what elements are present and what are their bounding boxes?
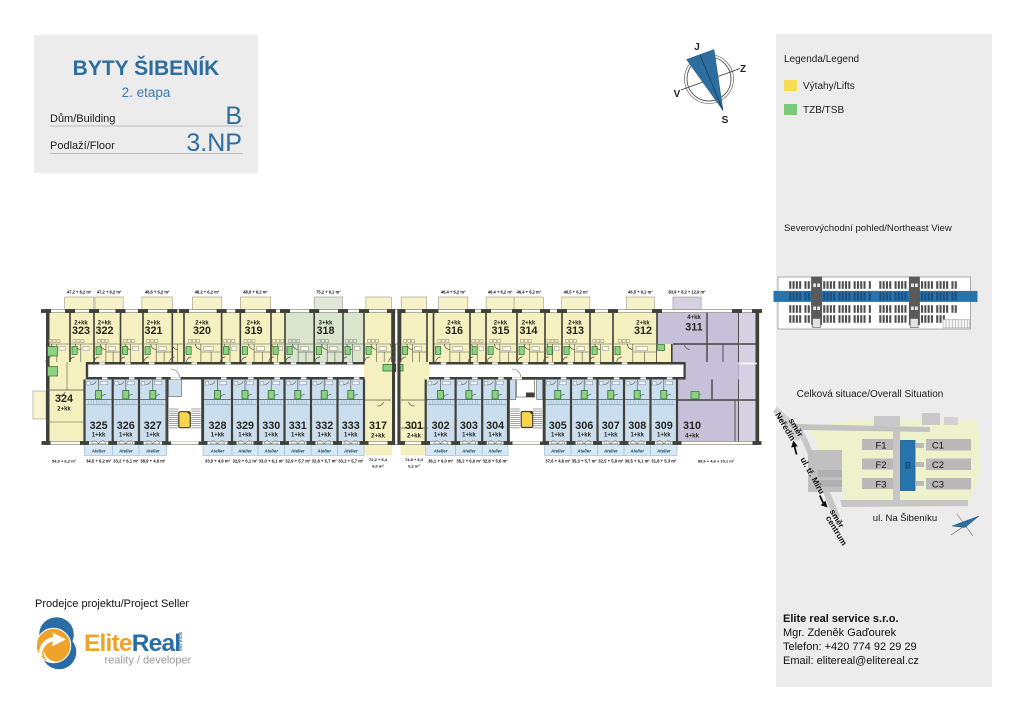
svg-text:Telefon: +420 774 92 29 29: Telefon: +420 774 92 29 29 (783, 641, 917, 653)
svg-text:46,4 + 6,2 m²: 46,4 + 6,2 m² (441, 290, 466, 295)
svg-text:46,5 + 6,2 m²: 46,5 + 6,2 m² (564, 290, 589, 295)
svg-text:302: 302 (432, 420, 450, 432)
svg-text:service: service (178, 632, 184, 651)
svg-text:1+kk: 1+kk (119, 432, 133, 438)
svg-text:35,3 + 5,7 m²: 35,3 + 5,7 m² (572, 459, 598, 464)
svg-text:Atelier: Atelier (210, 448, 225, 453)
svg-text:J: J (694, 42, 700, 53)
svg-text:reality / developer: reality / developer (105, 655, 192, 667)
svg-text:Z: Z (740, 64, 746, 75)
svg-text:325: 325 (90, 420, 108, 432)
svg-text:Atelier: Atelier (263, 448, 278, 453)
svg-text:311: 311 (685, 322, 702, 334)
svg-text:Atelier: Atelier (487, 448, 502, 453)
svg-text:V: V (674, 89, 681, 100)
svg-text:47,2 + 6,2 m²: 47,2 + 6,2 m² (67, 290, 92, 295)
svg-text:1+kk: 1+kk (604, 432, 618, 438)
svg-text:C3: C3 (932, 480, 944, 491)
svg-text:Atelier: Atelier (316, 448, 331, 453)
svg-text:Atelier: Atelier (629, 448, 644, 453)
svg-text:4+kk: 4+kk (685, 433, 699, 440)
svg-text:C1: C1 (932, 441, 944, 452)
svg-text:317: 317 (369, 420, 387, 432)
svg-text:2+kk: 2+kk (371, 433, 385, 440)
svg-text:30,5 + 6,1 m²: 30,5 + 6,1 m² (625, 459, 651, 464)
svg-text:32,8 + 5,7 m²: 32,8 + 5,7 m² (312, 459, 338, 464)
svg-text:310: 310 (683, 420, 701, 432)
svg-text:Atelier: Atelier (461, 448, 476, 453)
svg-text:Výtahy/Lifts: Výtahy/Lifts (803, 81, 855, 92)
svg-text:B: B (905, 461, 911, 472)
svg-text:Atelier: Atelier (145, 448, 160, 453)
svg-text:1+kk: 1+kk (462, 432, 476, 438)
svg-text:Atelier: Atelier (603, 448, 618, 453)
svg-text:TZB/TSB: TZB/TSB (803, 105, 844, 116)
svg-text:4+kk: 4+kk (687, 315, 701, 321)
svg-text:46,5 + 6,2 m²: 46,5 + 6,2 m² (628, 290, 653, 295)
svg-text:32,9 + 5,7 m²: 32,9 + 5,7 m² (285, 459, 311, 464)
svg-text:48,6 + 6,2 m²: 48,6 + 6,2 m² (243, 290, 268, 295)
svg-text:316: 316 (445, 325, 463, 337)
svg-text:1+kk: 1+kk (238, 432, 252, 438)
svg-text:306: 306 (575, 420, 593, 432)
svg-text:S: S (722, 115, 729, 126)
svg-text:48,2 + 6,2 m²: 48,2 + 6,2 m² (195, 290, 220, 295)
svg-text:308: 308 (628, 420, 646, 432)
svg-text:312: 312 (634, 325, 652, 337)
svg-text:32,8 + 5,6 m²: 32,8 + 5,6 m² (483, 459, 509, 464)
svg-text:46,4 + 6,2 m²: 46,4 + 6,2 m² (488, 290, 513, 295)
svg-text:1+kk: 1+kk (551, 432, 565, 438)
svg-text:2+kk: 2+kk (407, 433, 421, 440)
svg-text:1+kk: 1+kk (344, 432, 358, 438)
svg-text:323: 323 (72, 325, 90, 337)
svg-text:Atelier: Atelier (550, 448, 565, 453)
svg-text:330: 330 (262, 420, 280, 432)
svg-text:Mgr. Zdeněk Gaďourek: Mgr. Zdeněk Gaďourek (783, 627, 897, 639)
svg-text:322: 322 (95, 325, 113, 337)
svg-text:320: 320 (193, 325, 211, 337)
svg-text:329: 329 (236, 420, 254, 432)
svg-text:309: 309 (655, 420, 673, 432)
svg-text:1+kk: 1+kk (291, 432, 305, 438)
svg-text:34,5 + 6,2 m²: 34,5 + 6,2 m² (86, 459, 112, 464)
svg-text:72,2 + 5,4: 72,2 + 5,4 (369, 457, 388, 462)
svg-text:319: 319 (244, 325, 262, 337)
svg-text:313: 313 (566, 325, 584, 337)
svg-text:333: 333 (342, 420, 360, 432)
svg-text:Elite real service s.r.o.: Elite real service s.r.o. (783, 613, 899, 625)
svg-text:Legenda/Legend: Legenda/Legend (784, 54, 859, 65)
svg-text:48,6 + 6,2 m²: 48,6 + 6,2 m² (145, 290, 170, 295)
svg-text:331: 331 (289, 420, 307, 432)
svg-text:1+kk: 1+kk (657, 432, 671, 438)
svg-text:BYTY ŠIBENÍK: BYTY ŠIBENÍK (73, 56, 220, 80)
svg-text:315: 315 (491, 325, 509, 337)
svg-text:47,2 + 6,2 m²: 47,2 + 6,2 m² (97, 290, 122, 295)
svg-text:36,1 + 6,0 m²: 36,1 + 6,0 m² (428, 459, 454, 464)
svg-text:F1: F1 (875, 441, 886, 452)
svg-text:35,2 + 6,0 m²: 35,2 + 6,0 m² (456, 459, 482, 464)
svg-text:Celková situace/Overall Situat: Celková situace/Overall Situation (797, 389, 944, 400)
svg-text:B: B (225, 102, 242, 130)
svg-text:1+kk: 1+kk (317, 432, 331, 438)
svg-text:F3: F3 (875, 480, 886, 491)
svg-text:307: 307 (602, 420, 620, 432)
svg-text:Atelier: Atelier (118, 448, 133, 453)
svg-text:74,8 + 5,4: 74,8 + 5,4 (405, 457, 424, 462)
svg-text:Prodejce projektu/Project Sell: Prodejce projektu/Project Seller (35, 598, 189, 610)
svg-text:EliteReal: EliteReal (84, 630, 180, 657)
svg-text:314: 314 (519, 325, 537, 337)
svg-text:33,1 + 5,7 m²: 33,1 + 5,7 m² (338, 459, 364, 464)
svg-text:1+kk: 1+kk (146, 432, 160, 438)
svg-text:C2: C2 (932, 460, 944, 471)
svg-text:324: 324 (55, 393, 73, 405)
svg-text:326: 326 (117, 420, 135, 432)
svg-text:Atelier: Atelier (91, 448, 106, 453)
svg-text:1+kk: 1+kk (577, 432, 591, 438)
svg-text:Podlaží/Floor: Podlaží/Floor (50, 140, 115, 152)
svg-text:328: 328 (208, 420, 226, 432)
svg-text:Atelier: Atelier (237, 448, 252, 453)
svg-text:2+kk: 2+kk (57, 407, 71, 413)
svg-text:1+kk: 1+kk (211, 432, 225, 438)
svg-text:Dům/Building: Dům/Building (50, 113, 115, 125)
svg-text:Atelier: Atelier (290, 448, 305, 453)
svg-text:75,2 + 6,2 m²: 75,2 + 6,2 m² (316, 290, 341, 295)
svg-text:318: 318 (316, 325, 334, 337)
svg-text:46,4 + 6,2 m²: 46,4 + 6,2 m² (517, 290, 542, 295)
svg-text:6,0 m²: 6,0 m² (372, 464, 384, 469)
svg-text:33,0 + 4,6 m²: 33,0 + 4,6 m² (205, 459, 231, 464)
svg-text:1+kk: 1+kk (434, 432, 448, 438)
svg-text:Severovýchodní pohled/Northeas: Severovýchodní pohled/Northeast View (784, 223, 952, 234)
svg-text:89,9 + 4,6 + 10,1 m²: 89,9 + 4,6 + 10,1 m² (698, 459, 735, 464)
svg-text:Atelier: Atelier (656, 448, 671, 453)
svg-text:6,2 m²: 6,2 m² (408, 464, 420, 469)
svg-text:Atelier: Atelier (433, 448, 448, 453)
svg-text:327: 327 (144, 420, 162, 432)
svg-text:304: 304 (486, 420, 504, 432)
svg-text:33,0 + 6,1 m²: 33,0 + 6,1 m² (259, 459, 285, 464)
svg-text:Email: elitereal@elitereal.cz: Email: elitereal@elitereal.cz (783, 655, 919, 667)
svg-text:1+kk: 1+kk (92, 432, 106, 438)
svg-text:2. etapa: 2. etapa (122, 85, 171, 100)
svg-text:37,6 + 4,6 m²: 37,6 + 4,6 m² (545, 459, 571, 464)
svg-text:303: 303 (460, 420, 478, 432)
svg-text:32,9 + 6,1 m²: 32,9 + 6,1 m² (232, 459, 258, 464)
svg-text:Atelier: Atelier (343, 448, 358, 453)
svg-text:ul. Na Šibeníku: ul. Na Šibeníku (873, 513, 937, 524)
svg-text:3.NP: 3.NP (186, 129, 242, 157)
svg-text:1+kk: 1+kk (488, 432, 502, 438)
svg-text:305: 305 (549, 420, 567, 432)
svg-text:321: 321 (144, 325, 162, 337)
svg-text:38,9 + 4,6 m²: 38,9 + 4,6 m² (140, 459, 166, 464)
svg-text:32,5 + 5,9 m²: 32,5 + 5,9 m² (598, 459, 624, 464)
svg-text:54,0 + 6,2 m²: 54,0 + 6,2 m² (52, 459, 77, 464)
svg-text:1+kk: 1+kk (264, 432, 278, 438)
svg-text:332: 332 (315, 420, 333, 432)
svg-text:F2: F2 (875, 460, 886, 471)
svg-text:301: 301 (405, 420, 423, 432)
svg-text:Atelier: Atelier (576, 448, 591, 453)
svg-text:83,9 + 6,2 + 12,9 m²: 83,9 + 6,2 + 12,9 m² (668, 290, 706, 295)
svg-text:31,8 + 5,3 m²: 31,8 + 5,3 m² (651, 459, 677, 464)
svg-text:1+kk: 1+kk (630, 432, 644, 438)
svg-text:33,2 + 6,1 m²: 33,2 + 6,1 m² (113, 459, 139, 464)
